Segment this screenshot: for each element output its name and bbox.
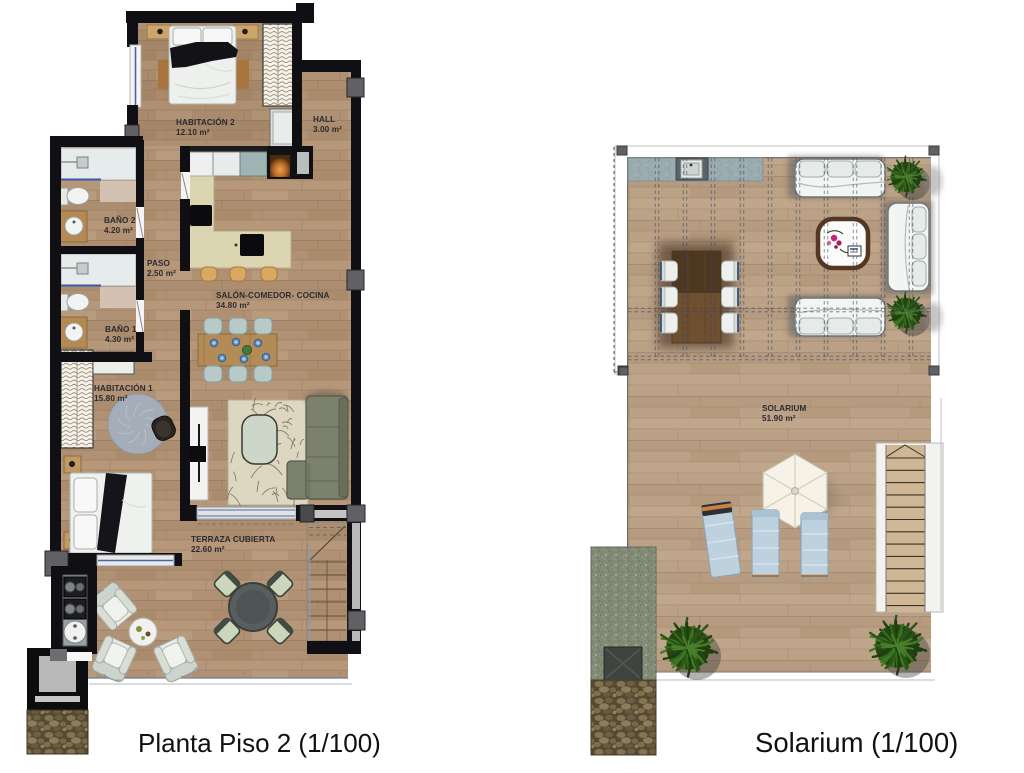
svg-text:4.20 m²: 4.20 m² (104, 226, 133, 235)
svg-text:Planta Piso 2 (1/100): Planta Piso 2 (1/100) (138, 728, 381, 758)
svg-text:22.60 m²: 22.60 m² (191, 545, 225, 554)
svg-text:34.80 m²: 34.80 m² (216, 301, 250, 310)
svg-text:HABITACIÓN 1: HABITACIÓN 1 (94, 382, 153, 393)
svg-text:SALÓN-COMEDOR- COCINA: SALÓN-COMEDOR- COCINA (216, 289, 330, 300)
svg-text:3.00 m²: 3.00 m² (313, 125, 342, 134)
svg-text:TERRAZA CUBIERTA: TERRAZA CUBIERTA (191, 535, 275, 544)
svg-text:SOLARIUM: SOLARIUM (762, 404, 807, 413)
svg-text:15.80 m²: 15.80 m² (94, 394, 128, 403)
svg-text:2.50 m²: 2.50 m² (147, 269, 176, 278)
svg-text:PASO: PASO (147, 259, 171, 268)
svg-text:HALL: HALL (313, 115, 335, 124)
svg-text:HABITACIÓN 2: HABITACIÓN 2 (176, 116, 235, 127)
svg-text:Solarium (1/100): Solarium (1/100) (755, 727, 958, 758)
svg-text:BAÑO 2: BAÑO 2 (104, 215, 136, 225)
svg-text:4.30 m²: 4.30 m² (105, 335, 134, 344)
svg-text:12.10 m²: 12.10 m² (176, 128, 210, 137)
svg-text:BAÑO 1: BAÑO 1 (105, 324, 137, 334)
svg-text:51.90 m²: 51.90 m² (762, 414, 796, 423)
